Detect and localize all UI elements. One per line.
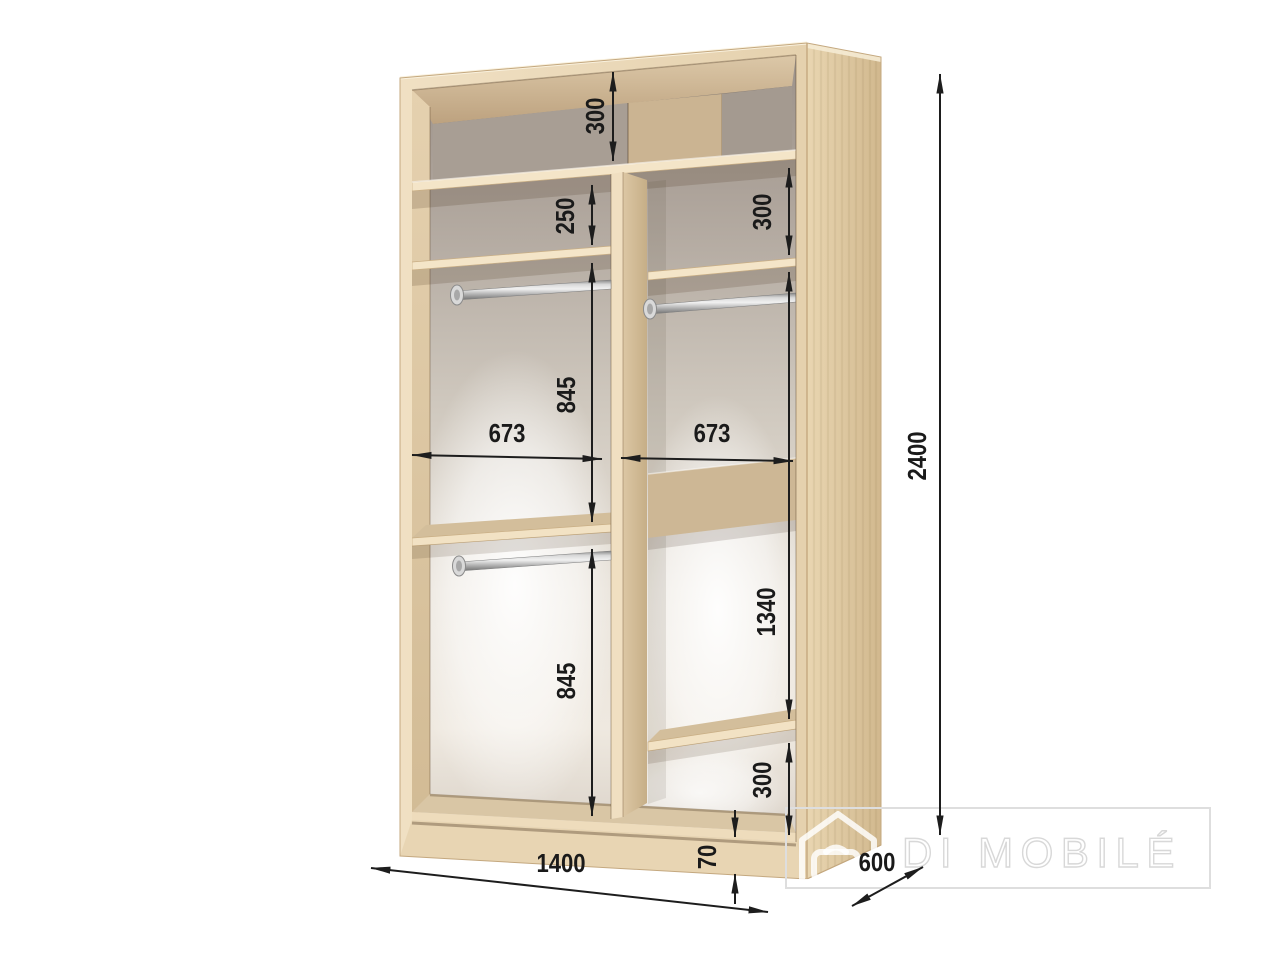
- dim-label: 600: [859, 848, 896, 877]
- wardrobe-dimension-diagram: DI MOBILÉ 300 250 300 845 673 673: [0, 0, 1280, 960]
- dim-label: 673: [694, 419, 731, 448]
- dim-label: 845: [552, 377, 581, 414]
- dim-label: 300: [748, 762, 777, 799]
- dim-label: 673: [489, 419, 526, 448]
- cabinet-interior: [400, 40, 806, 850]
- top-back-plank: [628, 94, 722, 164]
- dim-overall-height: 2400: [903, 74, 940, 835]
- top-back-panel-right: [722, 86, 792, 156]
- divider-front-edge: [611, 172, 623, 819]
- dim-label: 300: [748, 194, 777, 231]
- dim-label: 845: [552, 663, 581, 700]
- dim-label: 300: [581, 98, 610, 135]
- dim-label: 1340: [752, 587, 781, 636]
- side-panel: [807, 40, 881, 880]
- dim-label: 250: [551, 198, 580, 235]
- brand-name: DI MOBILÉ: [902, 829, 1182, 876]
- dim-label: 2400: [903, 431, 932, 480]
- wardrobe-illustration: [400, 40, 881, 880]
- divider-side-face: [623, 172, 647, 817]
- diagram-canvas: DI MOBILÉ 300 250 300 845 673 673: [0, 0, 1280, 960]
- dim-label: 1400: [536, 849, 585, 878]
- dim-label: 70: [693, 845, 722, 870]
